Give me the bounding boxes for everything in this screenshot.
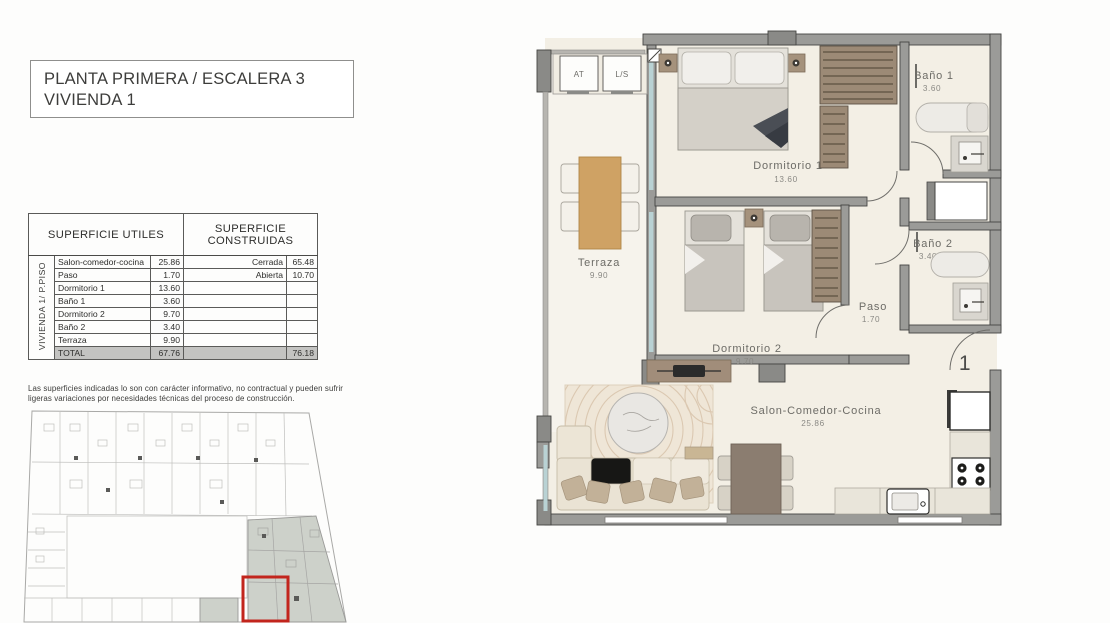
table-row: Baño 1 3.60	[29, 295, 318, 308]
bathtub-bano1-icon	[916, 103, 988, 132]
label-ls: L/S	[615, 70, 628, 79]
disclaimer-text: Las superficies indicadas lo son con car…	[28, 384, 373, 403]
room-label-dormitorio2: Dormitorio 2	[712, 343, 782, 355]
vertical-row-label: VIVIENDA 1/ P.PISO	[29, 256, 55, 360]
building-key-map	[10, 410, 360, 623]
coffee-table-icon	[608, 393, 668, 453]
room-area-dormitorio2: 9.70	[736, 357, 754, 366]
toilet-bano1-icon	[951, 136, 988, 172]
label-at: AT	[574, 70, 584, 79]
surface-area-table: SUPERFICIE UTILES SUPERFICIE CONSTRUIDAS…	[28, 213, 318, 360]
room-label-dormitorio1: Dormitorio 1	[753, 160, 823, 172]
utility-closet: AT L/S	[553, 49, 661, 94]
sink-icon	[887, 489, 929, 514]
wardrobe-dorm2-icon	[812, 210, 841, 302]
bed-double-icon	[659, 48, 805, 150]
fridge-icon	[947, 390, 990, 430]
terrace-table	[579, 157, 621, 249]
table-row: Baño 2 3.40	[29, 321, 318, 334]
room-label-paso: Paso	[859, 301, 887, 313]
plan-title-box: PLANTA PRIMERA / ESCALERA 3 VIVIENDA 1	[30, 60, 354, 118]
table-header-row: SUPERFICIE UTILES SUPERFICIE CONSTRUIDAS	[29, 214, 318, 256]
plan-title-line2: VIVIENDA 1	[44, 90, 353, 111]
toilet-bano2-icon	[953, 283, 988, 320]
table-row: Paso 1.70 Abierta 10.70	[29, 269, 318, 282]
tv-console-icon	[647, 360, 731, 382]
shaft	[927, 182, 987, 220]
bathtub-bano2-icon	[931, 252, 989, 277]
stove-icon	[952, 458, 990, 490]
room-area-bano1: 3.60	[923, 84, 941, 93]
room-area-dormitorio1: 13.60	[774, 175, 798, 184]
table-row: Dormitorio 1 13.60	[29, 282, 318, 295]
table-row: Terraza 9.90	[29, 334, 318, 347]
courtyard	[67, 516, 247, 598]
room-label-terraza: Terraza	[578, 257, 620, 269]
room-label-salon: Salon-Comedor-Cocina	[751, 405, 882, 417]
header-superficie-construidas: SUPERFICIE CONSTRUIDAS	[184, 214, 318, 256]
unit-number: 1	[959, 352, 971, 375]
room-label-bano2: Baño 2	[913, 238, 953, 250]
header-superficie-utiles: SUPERFICIE UTILES	[29, 214, 184, 256]
room-area-terraza: 9.90	[590, 271, 608, 280]
plan-title-line1: PLANTA PRIMERA / ESCALERA 3	[44, 69, 353, 90]
room-area-paso: 1.70	[862, 315, 880, 324]
table-row: Dormitorio 2 9.70	[29, 308, 318, 321]
room-area-salon: 25.86	[801, 419, 825, 428]
table-row: VIVIENDA 1/ P.PISO Salon-comedor-cocina …	[29, 256, 318, 269]
table-total-row: TOTAL 67.76 76.18	[29, 347, 318, 360]
room-label-bano1: Baño 1	[914, 70, 954, 82]
floor-plan: AT L/S Terraza 9.90	[535, 30, 1005, 530]
